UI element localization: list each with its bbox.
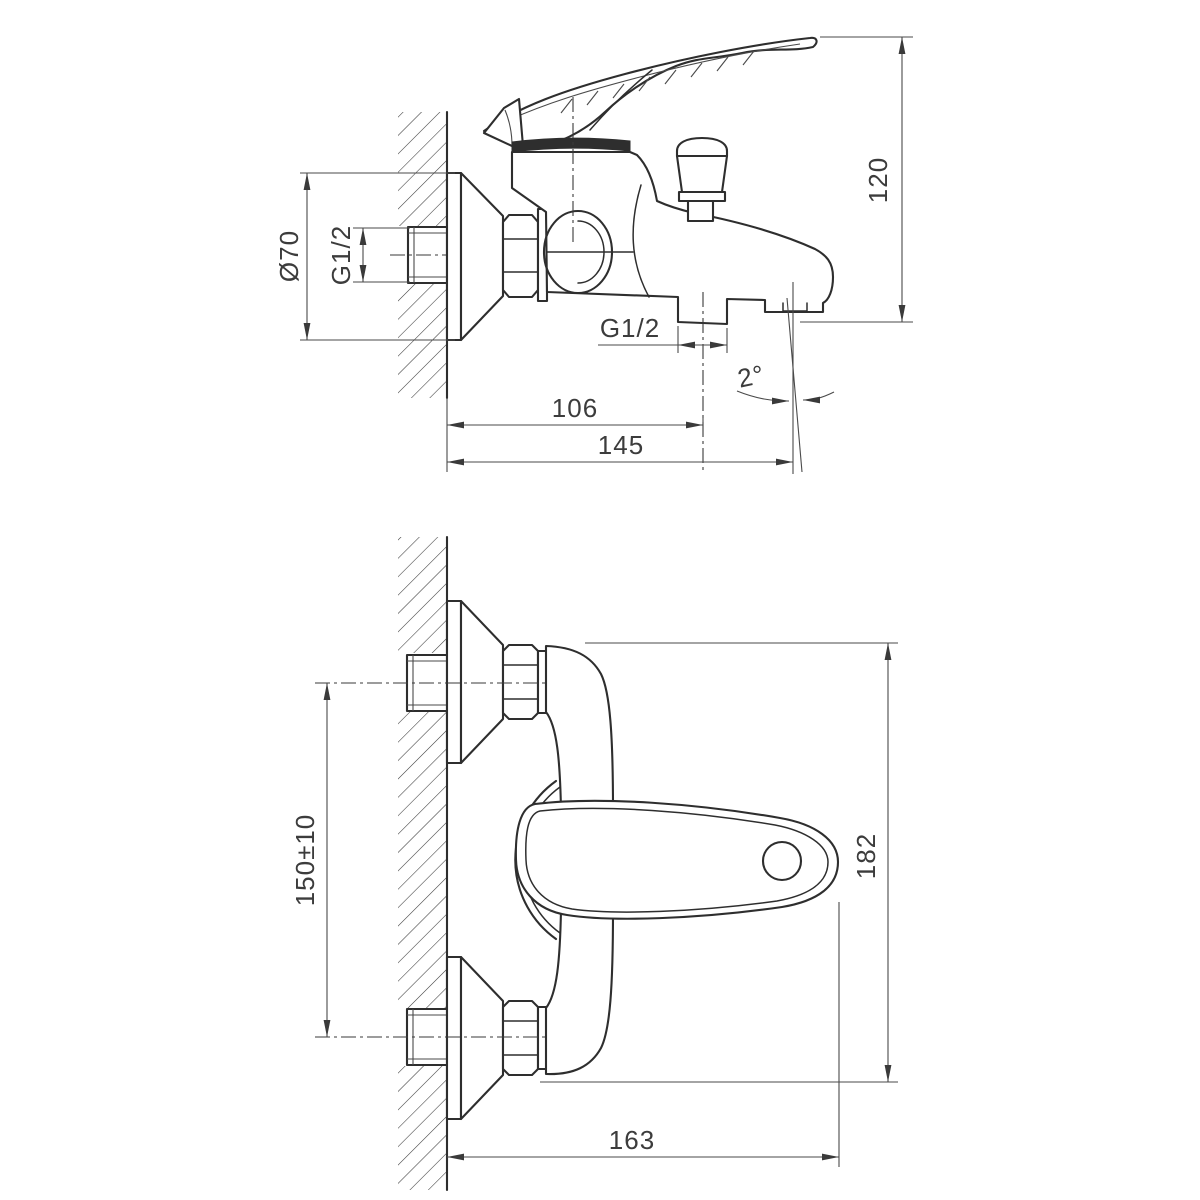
escutcheon-cone — [461, 957, 503, 1119]
dim-spout-reach: 145 — [598, 430, 644, 460]
diverter-flange — [679, 192, 725, 201]
escutcheon-cone — [461, 173, 503, 340]
dim-body-height: 182 — [851, 833, 881, 879]
faucet-body-side — [512, 152, 833, 324]
diverter-knob — [677, 138, 727, 221]
dim-shower-outlet-thread: G1/2 — [600, 313, 660, 343]
dimension-connection-spacing: 150±10 — [290, 683, 327, 1037]
wall-section-front — [398, 537, 447, 1190]
diverter-stem — [688, 200, 713, 221]
hex-nut — [503, 215, 538, 297]
escutcheon-plate — [447, 173, 461, 340]
lower-arm — [546, 910, 613, 1074]
diverter-dome — [677, 138, 727, 156]
upper-arm — [546, 646, 613, 810]
dim-spout-center-distance: 106 — [552, 393, 598, 423]
technical-drawing-page: Ø70 G1/2 120 G1/2 106 — [0, 0, 1200, 1200]
tilted-axis-2deg — [787, 298, 802, 472]
lever-handle-front — [516, 801, 838, 919]
side-view: Ø70 G1/2 120 G1/2 106 — [274, 37, 913, 474]
escutcheon-plate — [447, 601, 461, 763]
handle-cap — [484, 99, 523, 146]
wall-hatching — [398, 112, 447, 227]
handle-outline — [484, 38, 817, 146]
hex-nut — [503, 645, 538, 719]
technical-drawing-canvas: Ø70 G1/2 120 G1/2 106 — [0, 0, 1200, 1200]
front-view: 150±10 182 163 — [290, 537, 898, 1190]
hex-nut-side — [503, 209, 547, 301]
wall-hatching — [398, 1066, 447, 1190]
escutcheon-cone — [461, 601, 503, 763]
dimension-spout-reach: 145 — [447, 430, 793, 462]
dimension-spout-center: 106 — [447, 393, 703, 437]
cartridge-ring-band — [512, 138, 630, 152]
handle-front-outline — [516, 801, 838, 919]
wall-section-side — [398, 112, 447, 472]
dim-height: 120 — [863, 157, 893, 203]
dim-connection-spacing: 150±10 — [290, 814, 320, 907]
escutcheon-side — [447, 173, 503, 340]
lever-handle-side — [484, 38, 817, 152]
dim-wall-thread: G1/2 — [326, 225, 356, 285]
dim-overall-reach: 163 — [609, 1125, 655, 1155]
escutcheon-plate — [447, 957, 461, 1119]
angle-label: 2° — [735, 359, 768, 394]
wall-hatching — [398, 537, 447, 653]
angle-annotation: 2° — [735, 359, 834, 401]
hex-nut — [503, 1001, 538, 1075]
dim-flange-diameter: Ø70 — [274, 230, 304, 282]
body-outline — [512, 152, 833, 324]
wall-hatching — [398, 712, 447, 1009]
diverter-taper — [677, 156, 727, 192]
